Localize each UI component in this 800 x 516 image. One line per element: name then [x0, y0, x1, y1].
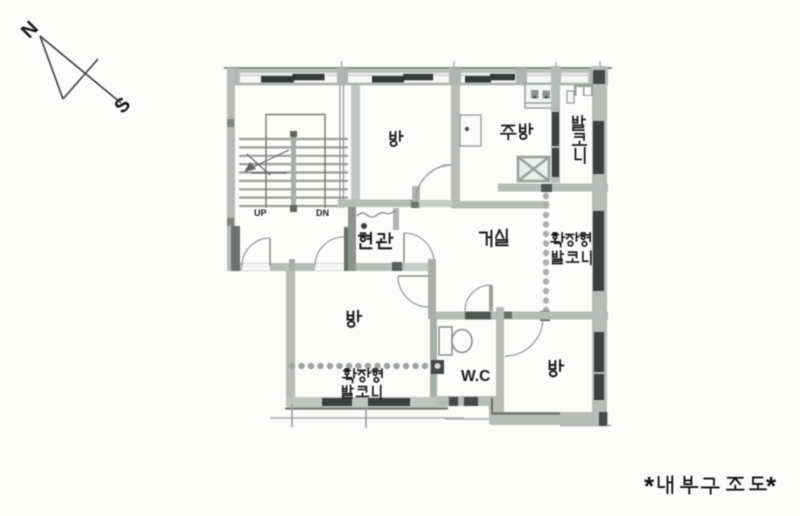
svg-text:*: *	[644, 471, 655, 501]
svg-text:DN: DN	[316, 208, 329, 218]
svg-text:W.C: W.C	[461, 368, 490, 385]
svg-text:*: *	[766, 471, 777, 501]
svg-text:UP: UP	[254, 208, 267, 218]
